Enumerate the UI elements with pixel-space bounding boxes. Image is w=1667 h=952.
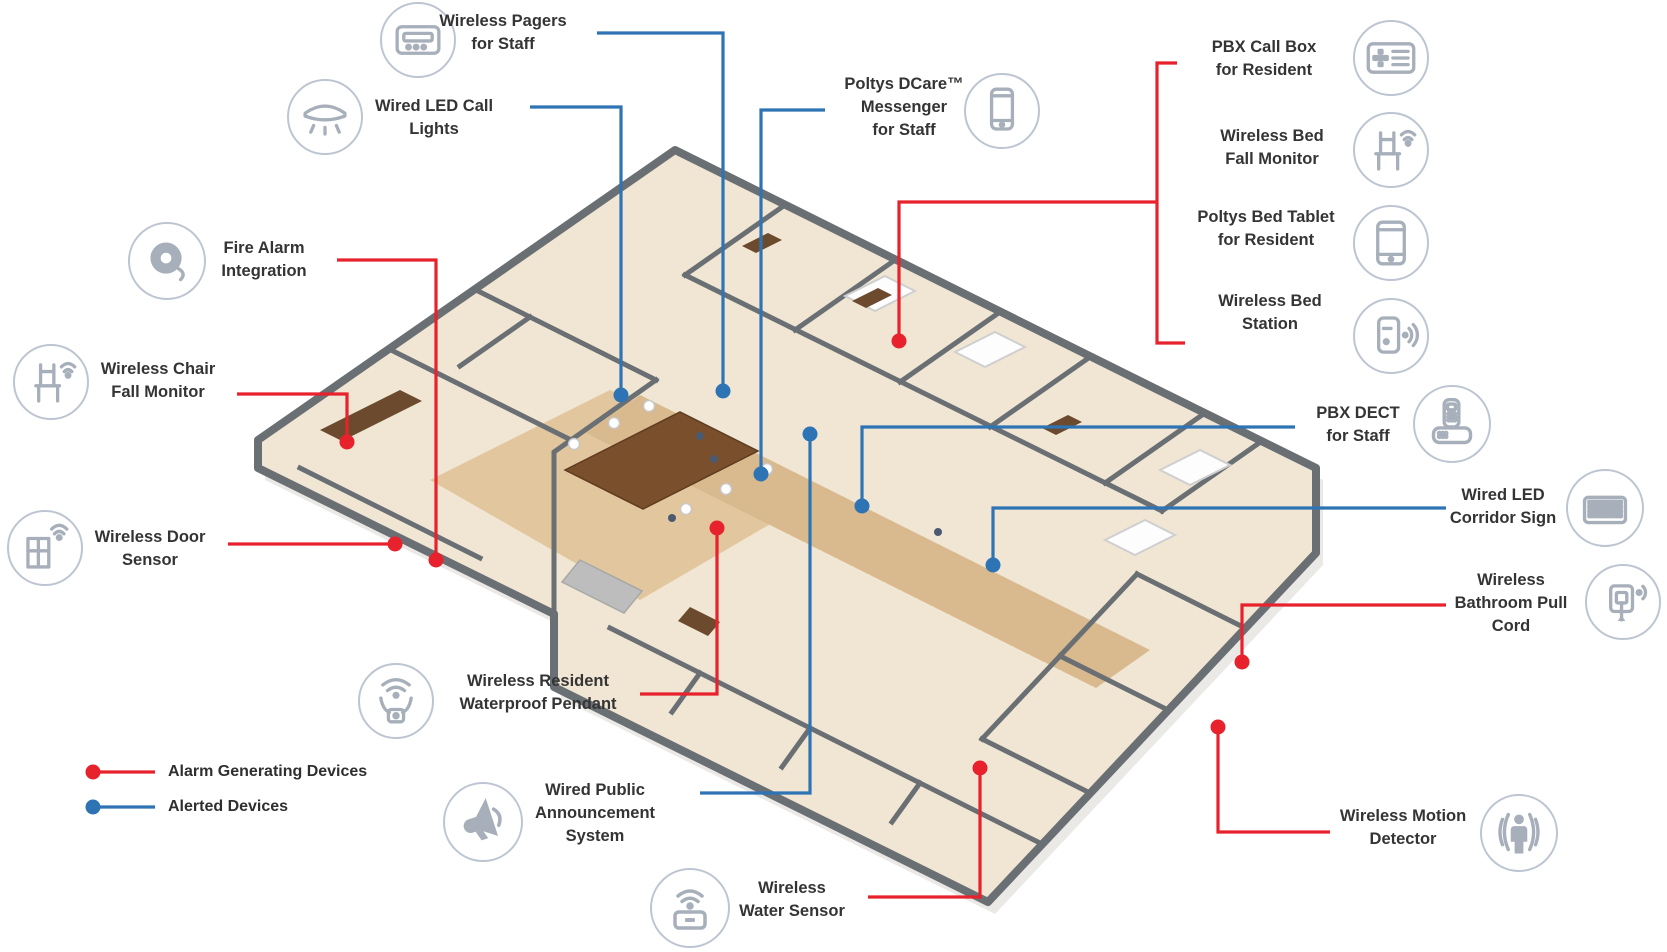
wireless-bed-fall-monitor-label-line: Fall Monitor — [1187, 148, 1357, 171]
wireless-bathroom-pull-cord-label-line: Wireless — [1431, 569, 1591, 592]
wired-led-corridor-sign-label-line: Wired LED — [1428, 484, 1578, 507]
pullcord-wifi-icon: .f{fill:#a7afbb;} — [1585, 564, 1661, 640]
poltys-dcare-messenger-label-line: Poltys DCare™ — [819, 73, 989, 96]
wireless-door-sensor-label-line: Wireless Door — [70, 526, 230, 549]
pbx-dect-label-line: PBX DECT — [1293, 402, 1423, 425]
infographic-canvas: .f{fill:#a7afbb;} Wireless Pagersfor Sta… — [0, 0, 1667, 952]
wired-led-corridor-sign-label-line: Corridor Sign — [1428, 507, 1578, 530]
wired-public-announcement-system-label: Wired PublicAnnouncementSystem — [510, 779, 680, 848]
wireless-motion-detector-label-line: Detector — [1313, 828, 1493, 851]
wireless-pagers-label: Wireless Pagersfor Staff — [423, 10, 583, 56]
callbox-icon: .f{fill:#a7afbb;} — [1353, 20, 1429, 96]
wired-public-announcement-system-label-line: Announcement — [510, 802, 680, 825]
wireless-bathroom-pull-cord-dot — [1235, 655, 1250, 670]
wireless-pagers-dot — [716, 384, 731, 399]
poltys-dcare-messenger-label-line: for Staff — [819, 119, 989, 142]
wireless-chair-fall-monitor-label: Wireless ChairFall Monitor — [78, 358, 238, 404]
legend-alerted-dot — [86, 800, 101, 815]
fire-alarm-integration-dot — [429, 553, 444, 568]
poltys-dcare-messenger-dot — [754, 467, 769, 482]
wireless-chair-fall-monitor-label-line: Wireless Chair — [78, 358, 238, 381]
fire-alarm-integration-label-line: Integration — [189, 260, 339, 283]
pbx-dect-label-line: for Staff — [1293, 425, 1423, 448]
wireless-motion-detector-label-line: Wireless Motion — [1313, 805, 1493, 828]
wired-led-corridor-sign-label: Wired LEDCorridor Sign — [1428, 484, 1578, 530]
pendant-wifi-icon: .f{fill:#a7afbb;} — [358, 663, 434, 739]
poltys-bed-tablet-label: Poltys Bed Tabletfor Resident — [1171, 206, 1361, 252]
wired-led-call-lights-label-line: Lights — [354, 118, 514, 141]
wireless-door-sensor-label-line: Sensor — [70, 549, 230, 572]
bed-fall-icon: .f{fill:#a7afbb;} — [1353, 112, 1429, 188]
tablet-icon: .f{fill:#a7afbb;} — [1353, 205, 1429, 281]
wireless-resident-waterproof-pendant-label-line: Waterproof Pendant — [428, 693, 648, 716]
wired-led-call-lights-dot — [614, 388, 629, 403]
wireless-pagers-label-line: Wireless Pagers — [423, 10, 583, 33]
poltys-dcare-messenger-label-line: Messenger — [819, 96, 989, 119]
fire-alarm-integration-label: Fire AlarmIntegration — [189, 237, 339, 283]
wireless-motion-detector-label: Wireless MotionDetector — [1313, 805, 1493, 851]
wireless-bed-fall-monitor-label-line: Wireless Bed — [1187, 125, 1357, 148]
wired-led-call-lights-label: Wired LED CallLights — [354, 95, 514, 141]
dect-phone-icon: .f{fill:#a7afbb;} — [1413, 385, 1491, 463]
wireless-chair-fall-monitor-dot — [340, 435, 355, 450]
wireless-chair-fall-monitor-label-line: Fall Monitor — [78, 381, 238, 404]
ceiling-light-icon: .f{fill:#a7afbb;} — [287, 79, 363, 155]
pbx-dect-dot — [855, 499, 870, 514]
pbx-call-box-label: PBX Call Boxfor Resident — [1174, 36, 1354, 82]
wireless-bed-station-label: Wireless BedStation — [1185, 290, 1355, 336]
pbx-dect-label: PBX DECTfor Staff — [1293, 402, 1423, 448]
bed-device-group-connector-0 — [1157, 63, 1185, 343]
legend-alerted-label: Alerted Devices — [168, 796, 288, 818]
wireless-resident-waterproof-pendant-label: Wireless ResidentWaterproof Pendant — [428, 670, 648, 716]
wireless-water-sensor-label: WirelessWater Sensor — [717, 877, 867, 923]
wired-public-announcement-system-label-line: System — [510, 825, 680, 848]
wireless-bed-station-label-line: Wireless Bed — [1185, 290, 1355, 313]
wireless-bed-station-label-line: Station — [1185, 313, 1355, 336]
pbx-call-box-label-line: PBX Call Box — [1174, 36, 1354, 59]
wired-led-corridor-sign-dot — [986, 558, 1001, 573]
wireless-bathroom-pull-cord-label: WirelessBathroom PullCord — [1431, 569, 1591, 638]
fire-alarm-integration-label-line: Fire Alarm — [189, 237, 339, 260]
poltys-bed-tablet-label-line: for Resident — [1171, 229, 1361, 252]
poltys-dcare-messenger-label: Poltys DCare™Messengerfor Staff — [819, 73, 989, 142]
wireless-motion-detector-dot — [1211, 720, 1226, 735]
wireless-water-sensor-label-line: Wireless — [717, 877, 867, 900]
wireless-pagers-label-line: for Staff — [423, 33, 583, 56]
floorplan — [258, 150, 1323, 914]
wireless-door-sensor-label: Wireless DoorSensor — [70, 526, 230, 572]
wireless-bathroom-pull-cord-label-line: Cord — [1431, 615, 1591, 638]
legend-alarm-dot — [86, 765, 101, 780]
wireless-resident-waterproof-pendant-dot — [710, 521, 725, 536]
pbx-call-box-label-line: for Resident — [1174, 59, 1354, 82]
wired-public-announcement-system-dot — [803, 427, 818, 442]
wireless-bed-fall-monitor-label: Wireless BedFall Monitor — [1187, 125, 1357, 171]
wired-led-call-lights-label-line: Wired LED Call — [354, 95, 514, 118]
bed-station-icon: .f{fill:#a7afbb;} — [1353, 298, 1429, 374]
wireless-water-sensor-label-line: Water Sensor — [717, 900, 867, 923]
wired-public-announcement-system-label-line: Wired Public — [510, 779, 680, 802]
wireless-water-sensor-dot — [973, 761, 988, 776]
wireless-bathroom-pull-cord-label-line: Bathroom Pull — [1431, 592, 1591, 615]
legend-alarm-label: Alarm Generating Devices — [168, 761, 367, 783]
wireless-resident-waterproof-pendant-label-line: Wireless Resident — [428, 670, 648, 693]
bed-device-group-dot — [892, 334, 907, 349]
wireless-door-sensor-dot — [388, 537, 403, 552]
poltys-bed-tablet-label-line: Poltys Bed Tablet — [1171, 206, 1361, 229]
